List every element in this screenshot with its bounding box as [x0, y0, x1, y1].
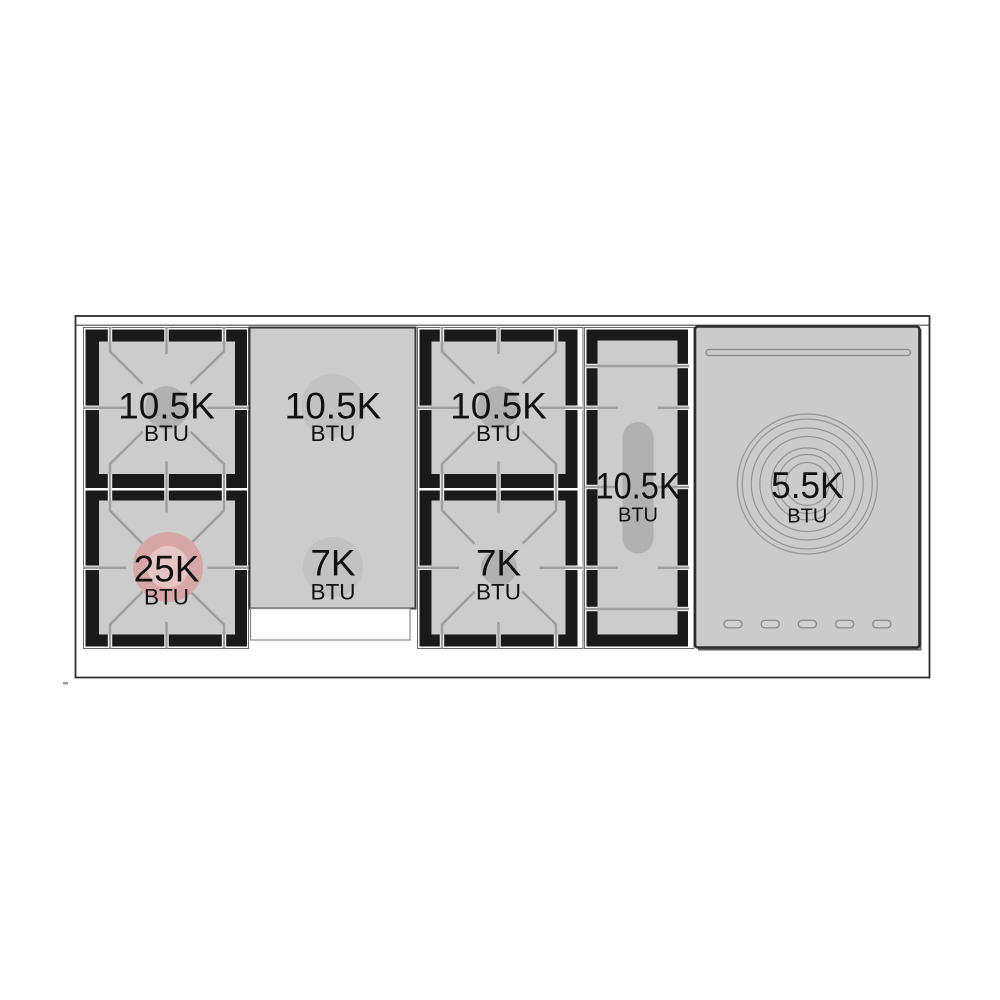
svg-text:BTU: BTU: [476, 580, 521, 605]
svg-text:BTU: BTU: [144, 421, 189, 446]
svg-text:BTU: BTU: [311, 421, 356, 446]
svg-text:25K: 25K: [134, 549, 200, 590]
svg-text:BTU: BTU: [787, 506, 827, 528]
svg-text:BTU: BTU: [618, 505, 658, 527]
svg-text:10.5K: 10.5K: [595, 466, 680, 507]
svg-text:7K: 7K: [476, 543, 522, 584]
svg-text:BTU: BTU: [476, 421, 521, 446]
svg-text:5.5K: 5.5K: [771, 464, 843, 506]
svg-text:BTU: BTU: [144, 585, 189, 610]
svg-text:7K: 7K: [310, 543, 356, 584]
svg-text:BTU: BTU: [311, 580, 356, 605]
